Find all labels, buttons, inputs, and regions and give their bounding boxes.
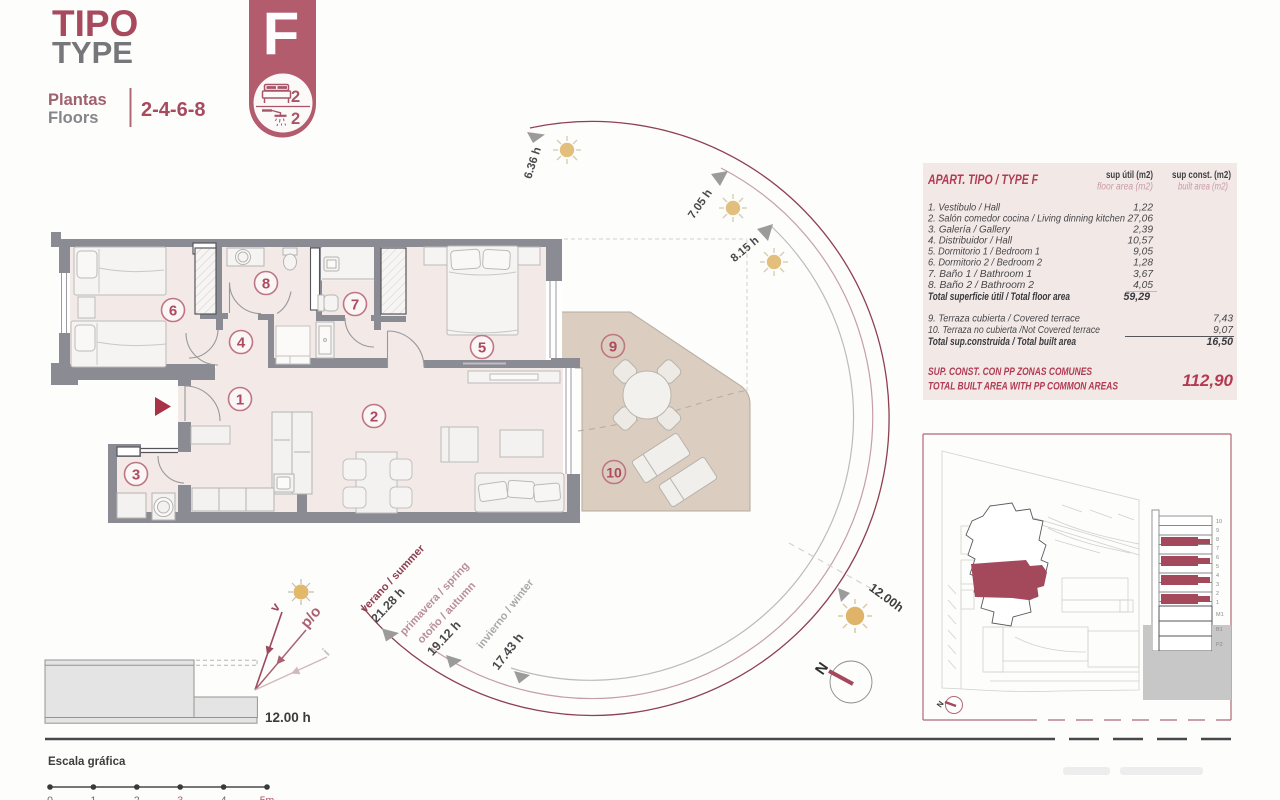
svg-text:2,39: 2,39 [1132, 225, 1153, 236]
svg-text:1. Vestibulo / Hall: 1. Vestibulo / Hall [928, 203, 1001, 214]
svg-text:12.00 h: 12.00 h [265, 710, 311, 725]
svg-text:Escala gráfica: Escala gráfica [48, 756, 126, 768]
svg-text:floor area (m2): floor area (m2) [1097, 182, 1153, 193]
svg-text:4,05: 4,05 [1133, 280, 1153, 291]
svg-text:1,28: 1,28 [1133, 258, 1153, 269]
svg-text:4: 4 [221, 795, 227, 800]
svg-text:8. Baño 2 / Bathroom 2: 8. Baño 2 / Bathroom 2 [928, 280, 1034, 291]
svg-text:9. Terraza cubierta / Covered: 9. Terraza cubierta / Covered terrace [928, 314, 1080, 325]
svg-text:9: 9 [609, 339, 617, 356]
svg-text:TYPE: TYPE [52, 35, 133, 70]
svg-text:9: 9 [1216, 528, 1219, 534]
svg-text:2. Salón comedor cocina / Livi: 2. Salón comedor cocina / Living dinning… [927, 214, 1125, 225]
svg-text:3: 3 [1216, 582, 1219, 588]
svg-text:59,29: 59,29 [1123, 291, 1150, 303]
svg-text:3: 3 [177, 795, 183, 800]
svg-text:10. Terraza no cubierta /Not C: 10. Terraza no cubierta /Not Covered ter… [928, 325, 1100, 336]
svg-text:sup útil (m2): sup útil (m2) [1106, 170, 1153, 181]
svg-text:16,50: 16,50 [1206, 336, 1233, 348]
svg-text:5m: 5m [260, 795, 275, 800]
svg-text:6: 6 [169, 303, 177, 320]
svg-text:10: 10 [1216, 519, 1222, 525]
svg-text:3,67: 3,67 [1133, 269, 1153, 280]
svg-text:6: 6 [1216, 555, 1219, 561]
svg-text:7. Baño 1 / Bathroom 1: 7. Baño 1 / Bathroom 1 [928, 269, 1032, 280]
svg-text:Plantas: Plantas [48, 91, 107, 109]
svg-text:8: 8 [1216, 537, 1219, 543]
svg-text:3. Galería / Gallery: 3. Galería / Gallery [928, 225, 1011, 236]
svg-text:2: 2 [1216, 591, 1219, 597]
svg-text:4: 4 [1216, 573, 1219, 579]
svg-text:4. Distribuidor / Hall: 4. Distribuidor / Hall [928, 236, 1013, 247]
svg-text:5. Dormitorio 1 / Bedroom 1: 5. Dormitorio 1 / Bedroom 1 [928, 247, 1040, 258]
svg-text:7: 7 [351, 297, 359, 314]
svg-text:SUP. CONST. CON PP ZONAS COMUN: SUP. CONST. CON PP ZONAS COMUNES [928, 366, 1093, 378]
svg-text:built area (m2): built area (m2) [1178, 182, 1228, 193]
svg-text:2: 2 [370, 409, 378, 426]
svg-text:2: 2 [291, 88, 300, 106]
svg-text:sup const. (m2): sup const. (m2) [1172, 170, 1231, 181]
svg-text:P2: P2 [1216, 642, 1223, 648]
svg-text:1,22: 1,22 [1133, 203, 1153, 214]
svg-text:B1: B1 [1216, 627, 1223, 633]
svg-text:9,07: 9,07 [1213, 325, 1233, 336]
svg-text:4: 4 [237, 335, 246, 352]
svg-text:27,06: 27,06 [1127, 214, 1154, 225]
svg-text:9,05: 9,05 [1133, 247, 1153, 258]
svg-text:5: 5 [478, 340, 486, 357]
svg-text:6. Dormitorio 2 / Bedroom 2: 6. Dormitorio 2 / Bedroom 2 [928, 258, 1042, 269]
svg-text:10: 10 [606, 465, 622, 481]
svg-text:2: 2 [134, 795, 140, 800]
svg-text:Floors: Floors [48, 109, 98, 127]
svg-text:1: 1 [1216, 600, 1219, 606]
svg-text:APART. TIPO / TYPE F: APART. TIPO / TYPE F [927, 172, 1038, 187]
svg-text:0: 0 [47, 795, 53, 800]
svg-text:10,57: 10,57 [1128, 236, 1154, 247]
svg-text:3: 3 [132, 467, 140, 484]
svg-text:F: F [263, 0, 300, 67]
svg-text:M1: M1 [1216, 612, 1224, 618]
svg-text:7,43: 7,43 [1213, 314, 1233, 325]
svg-text:8: 8 [262, 276, 270, 293]
svg-text:5: 5 [1216, 564, 1219, 570]
svg-text:1: 1 [90, 795, 96, 800]
svg-text:Total superficie útil / Total: Total superficie útil / Total floor area [928, 291, 1070, 303]
svg-text:112,90: 112,90 [1182, 371, 1233, 390]
svg-text:Total sup.construida / Total b: Total sup.construida / Total built area [928, 336, 1076, 348]
svg-text:2: 2 [291, 110, 300, 128]
svg-text:TOTAL BUILT AREA WITH PP COMMO: TOTAL BUILT AREA WITH PP COMMON AREAS [928, 381, 1119, 393]
svg-text:1: 1 [236, 392, 244, 409]
svg-text:2-4-6-8: 2-4-6-8 [141, 99, 205, 121]
svg-text:7: 7 [1216, 546, 1219, 552]
